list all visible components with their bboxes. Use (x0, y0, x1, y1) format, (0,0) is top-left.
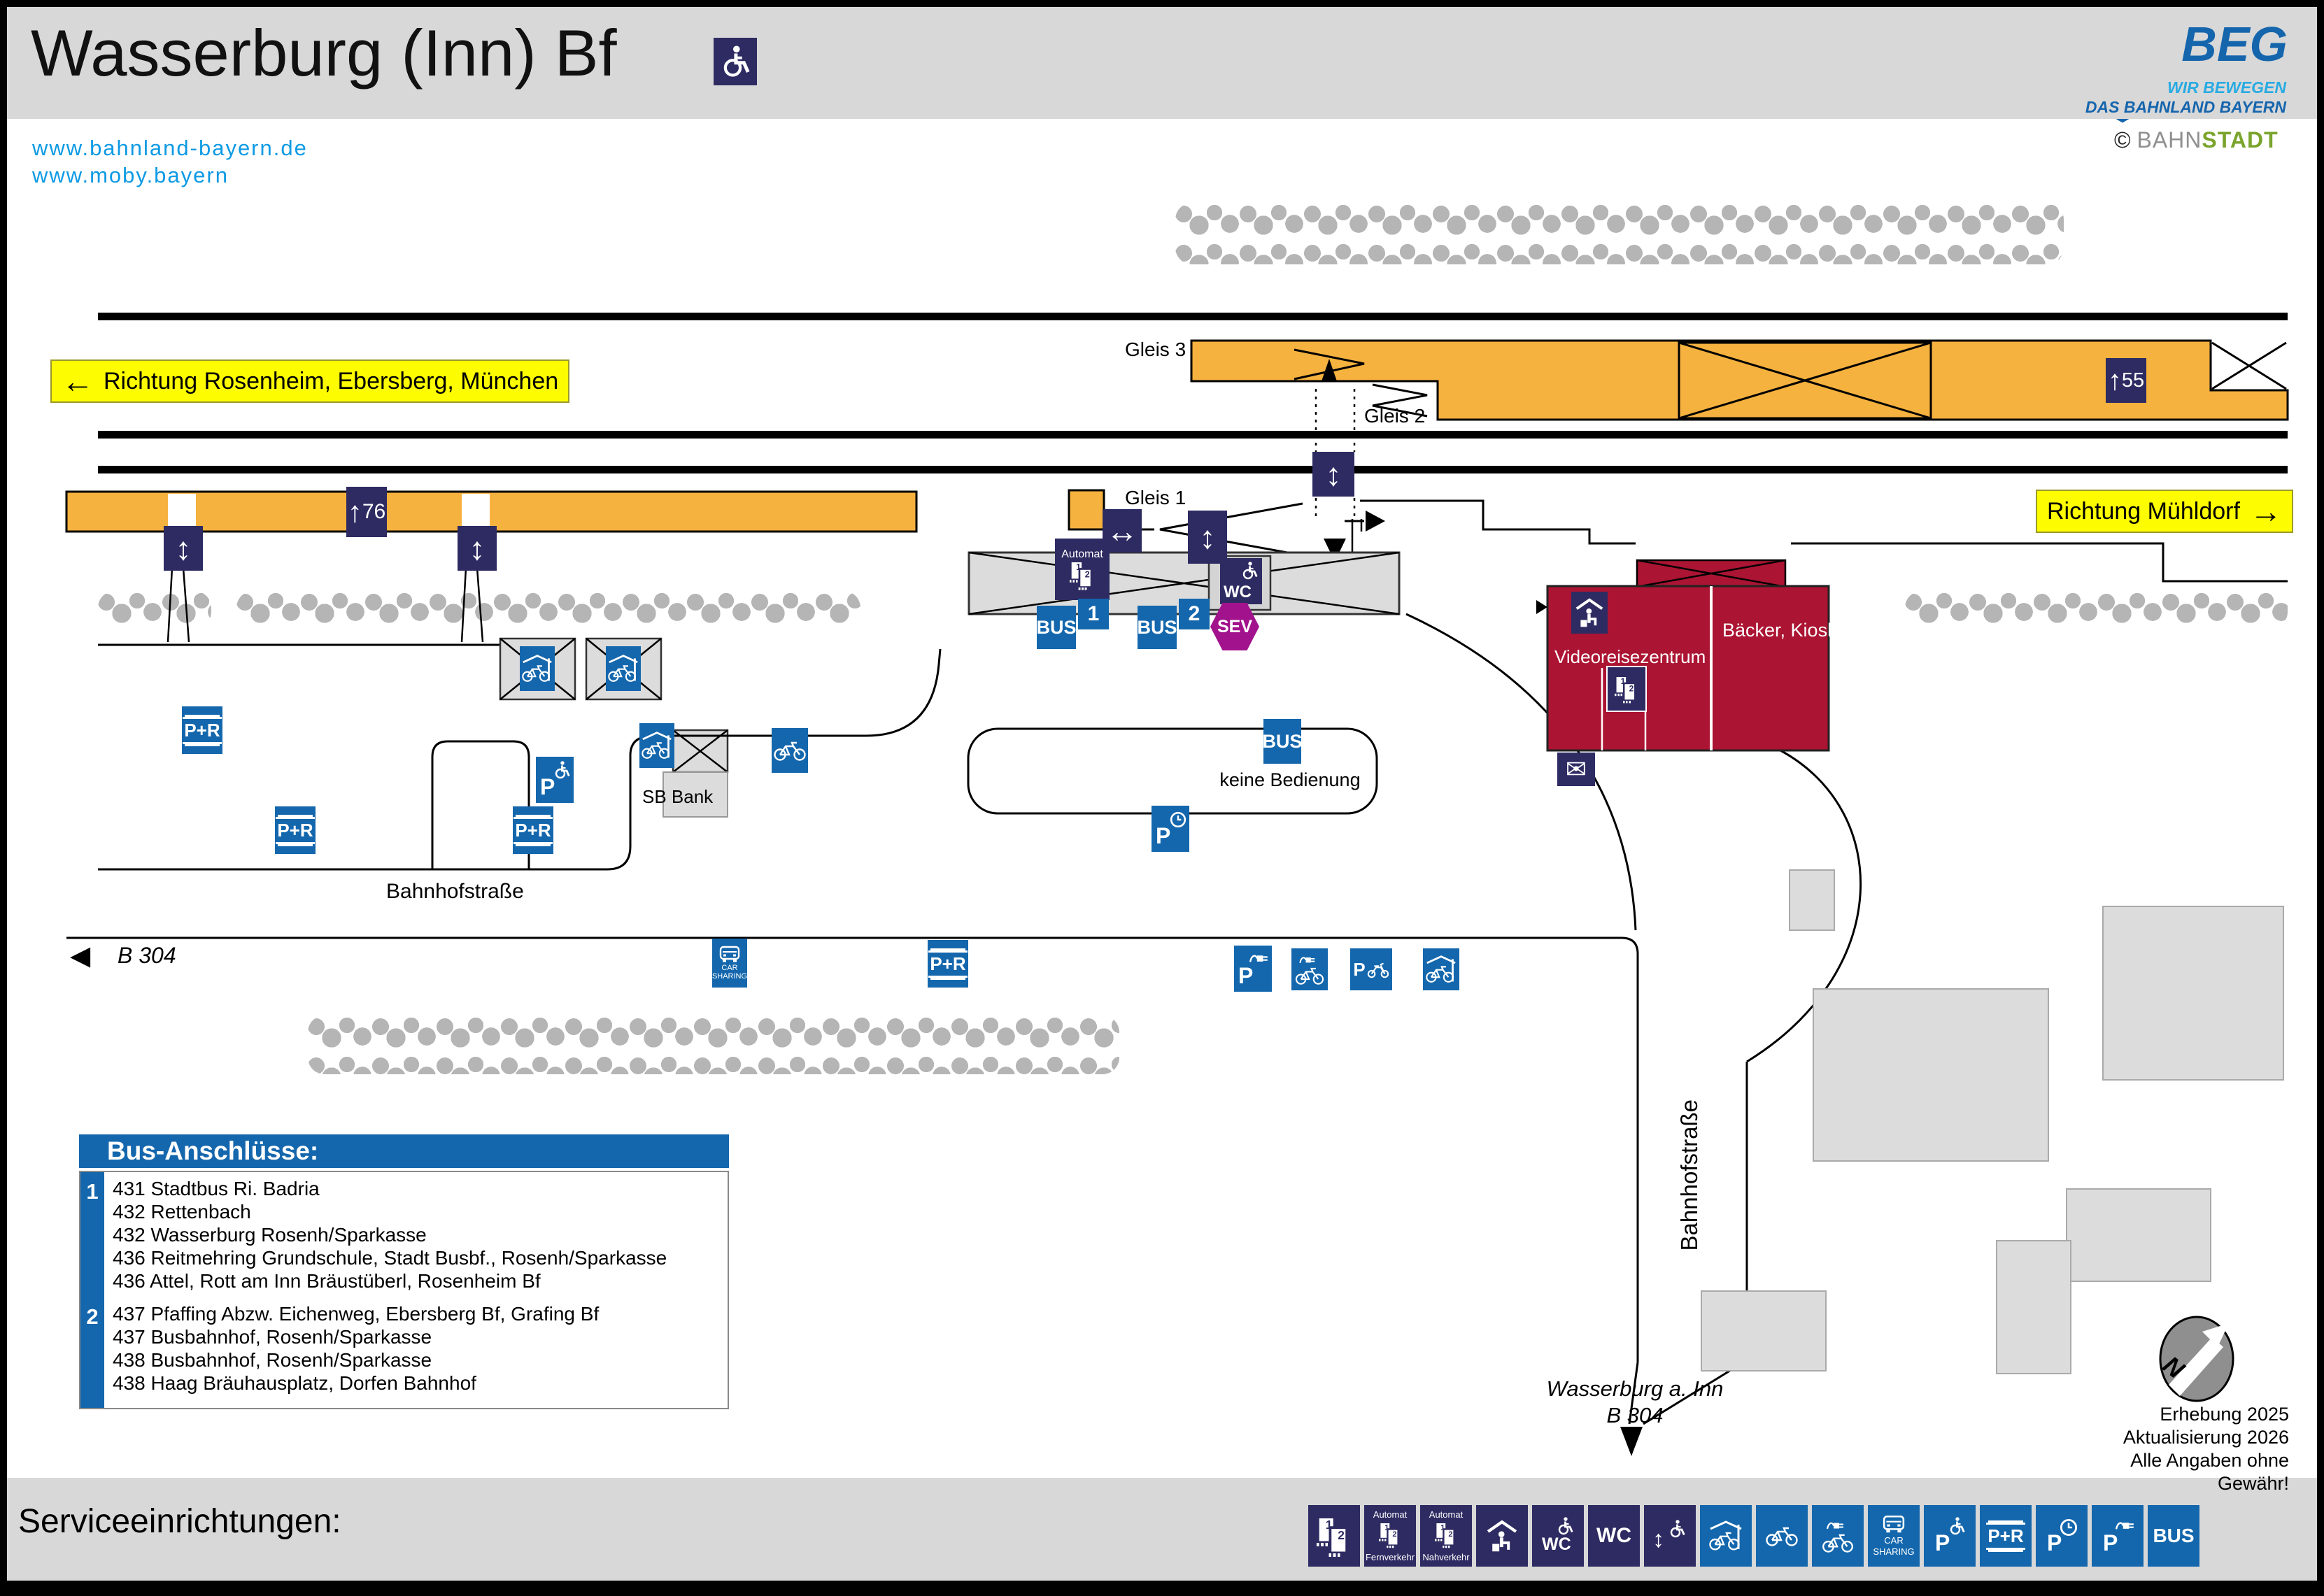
bus-line-row: 432 Wasserburg Rosenh/Sparkasse (113, 1224, 427, 1246)
b304-west-label: B 304 (118, 943, 176, 969)
direction-banner-east: Richtung Mühldorf → (2036, 490, 2293, 533)
keine-bedienung-label: keine Bedienung (1219, 769, 1360, 791)
survey-note: Erhebung 2025 Aktualisierung 2026 Alle A… (2057, 1403, 2289, 1495)
disabled-parking-badge: P (536, 757, 574, 803)
bus-connections-title: Bus-Anschlüsse: (79, 1134, 729, 1168)
bahnstadt-part2: STADT (2202, 127, 2278, 152)
bahnhofstrasse-label: Bahnhofstraße (386, 880, 524, 904)
entrance-arrow (1536, 600, 1547, 614)
short-term-parking-badge: P (1152, 806, 1189, 852)
bus-line-row: 437 Pfaffing Abzw. Eichenweg, Ebersberg … (113, 1303, 599, 1325)
covered-bike-parking-icon (1700, 1505, 1752, 1567)
covered-bike-icon (522, 651, 553, 686)
ebike-charging-badge (1291, 948, 1328, 990)
sb-bank-label: SB Bank (642, 786, 713, 808)
wheelchair-icon (719, 45, 751, 78)
bus-connections-panel: Bus-Anschlüsse: 1431 Stadtbus Ri. Badria… (79, 1134, 729, 1409)
park-ride-badge-2: P+R (275, 806, 316, 854)
survey-year: Erhebung 2025 (2057, 1403, 2289, 1426)
page-title: Wasserburg (Inn) Bf (31, 15, 617, 91)
covered-bike-icon (642, 728, 672, 763)
beg-wordmark: BEG (2176, 18, 2288, 70)
ev-charging-badge: P (1234, 946, 1272, 992)
bus-stop-column (80, 1172, 104, 1408)
left-arrow-icon: ← (62, 374, 94, 388)
bus-stop-2-number: 2 (1179, 599, 1210, 629)
bus-stop-number-1: 1 (80, 1179, 104, 1204)
bike-icon (774, 740, 806, 761)
b304-south-arrow (1620, 1427, 1643, 1456)
platform-length-76-badge: ↑ 76 (346, 487, 387, 537)
right-arrow-icon: → (2250, 504, 2282, 518)
bus-stop-1-badge: BUS (1037, 606, 1076, 649)
copyright-icon: © (2114, 127, 2131, 152)
covered-bike-badge-2 (606, 646, 641, 691)
covered-bike-badge-3 (639, 723, 674, 768)
moped-parking-badge: P (1350, 948, 1392, 990)
b304-south-label: B 304 (1606, 1403, 1663, 1428)
beg-tagline1: WIR BEWEGEN (2167, 78, 2286, 97)
mailbox-badge: ✉ (1557, 753, 1595, 786)
bus-loop-stop-badge: BUS (1263, 719, 1301, 764)
up-arrow-icon: ↑ (348, 498, 362, 526)
disclaimer: Alle Angaben ohne Gewähr! (2057, 1449, 2289, 1495)
link-moby-bayern[interactable]: www.moby.bayern (32, 162, 308, 189)
covered-bike-icon (1426, 953, 1457, 986)
envelope-icon: ✉ (1566, 755, 1587, 784)
baecker-kiosk-label: Bäcker, Kiosk (1722, 620, 1837, 641)
elevator-mid-icon: ↕ (458, 526, 497, 571)
beg-logo-text: BEG (2176, 18, 2288, 70)
car-sharing-icon: CARSHARING (1868, 1505, 1920, 1567)
wasserburg-label: Wasserburg a. Inn (1547, 1376, 1724, 1402)
bus-line-row: 431 Stadtbus Ri. Badria (113, 1178, 320, 1200)
ticket-machine-building-badge: Automat 12 (1055, 539, 1110, 600)
bahnhofstrasse-south-label: Bahnhofstraße (1676, 1099, 1703, 1251)
website-links: www.bahnland-bayern.de www.moby.bayern (32, 134, 308, 189)
accessible-wc-icon: WC (1532, 1505, 1584, 1567)
car-icon (719, 946, 740, 964)
ticket-icon: 12 (1072, 562, 1093, 587)
track-gleis3 (98, 313, 2288, 320)
disabled-parking-icon: P (1924, 1505, 1976, 1567)
videoreisezentrum-label: Videoreisezentrum (1554, 646, 1706, 668)
bus-stop-2-badge: BUS (1138, 606, 1177, 649)
bus-line-row: 436 Reitmehring Grundschule, Stadt Busbf… (113, 1247, 667, 1269)
covered-bike-badge-4 (1423, 948, 1459, 990)
track-gleis1 (98, 466, 2288, 473)
bike-parking-badge (772, 728, 808, 773)
gleis2-label: Gleis 2 (1364, 405, 1425, 427)
wc-icon: WC (1588, 1505, 1640, 1567)
bus-connections-list: 1431 Stadtbus Ri. Badria432 Rettenbach43… (79, 1171, 729, 1409)
direction-banner-west: ← Richtung Rosenheim, Ebersberg, München (50, 359, 569, 403)
bike-parking-icon (1756, 1505, 1808, 1567)
elevator-west-icon: ↕ (164, 526, 203, 571)
context-buildings (1701, 870, 2283, 1374)
footer-title: Serviceeinrichtungen: (18, 1502, 341, 1541)
up-arrow-icon: ↑ (2108, 367, 2122, 394)
ticket-counter-icon: 12 (1308, 1505, 1360, 1567)
videoreisezentrum-ticket-badge: 12 (1606, 666, 1647, 712)
bus-line-row: 437 Busbahnhof, Rosenh/Sparkasse (113, 1326, 432, 1348)
wheelchair-icon (1240, 562, 1259, 580)
bus-line-row: 438 Haag Bräuhausplatz, Dorfen Bahnhof (113, 1372, 476, 1395)
moped-icon (1367, 960, 1389, 978)
bahnstadt-credit: © BAHNSTADT (2114, 127, 2279, 153)
link-bahnland-bayern[interactable]: www.bahnland-bayern.de (32, 134, 308, 162)
park-and-ride-icon: P+R (1980, 1505, 2032, 1567)
elevator-island-icon: ↕ (1312, 452, 1354, 497)
ebike-charging-icon (1294, 953, 1325, 986)
car-sharing-badge: CAR SHARING (712, 939, 747, 988)
bus-stop-number-2: 2 (80, 1304, 104, 1330)
path-right-arrow (1366, 511, 1385, 532)
ebike-charging-icon (1812, 1505, 1864, 1567)
waiting-room-icon (1476, 1505, 1528, 1567)
park-ride-badge-3: P+R (513, 806, 553, 854)
boarding-aid-icon: ↕ (1644, 1505, 1696, 1567)
elevator-shafts (168, 568, 483, 642)
waiting-room-icon (1575, 598, 1604, 627)
update-year: Aktualisierung 2026 (2057, 1426, 2289, 1449)
crossing-chevron (1160, 504, 1303, 555)
ticket-machine-local-icon: Automat12Nahverkehr (1420, 1505, 1472, 1567)
bus-line-row: 432 Rettenbach (113, 1201, 251, 1223)
track-gleis2 (98, 431, 2288, 439)
service-icons-row: 12Automat12FernverkehrAutomat12Nahverkeh… (1308, 1505, 2211, 1567)
waiting-room-badge (1571, 592, 1608, 634)
covered-bike-badge-1 (520, 646, 555, 691)
bus-stop-1-number: 1 (1078, 599, 1109, 629)
elevator-crossing-icon: ↕ (1188, 511, 1227, 564)
ticket-icon: 12 (1617, 677, 1637, 701)
park-ride-badge-4: P+R (928, 940, 968, 988)
beg-tagline2: DAS BAHNLAND BAYERN (2085, 98, 2286, 117)
bus-line-row: 438 Busbahnhof, Rosenh/Sparkasse (113, 1349, 432, 1371)
covered-bike-icon (608, 651, 639, 686)
bus-line-row: 436 Attel, Rott am Inn Bräustüberl, Rose… (113, 1270, 541, 1292)
park-ride-badge-1: P+R (182, 706, 222, 754)
gleis3-label: Gleis 3 (1125, 339, 1186, 361)
ticket-machine-longdistance-icon: Automat12Fernverkehr (1364, 1505, 1416, 1567)
ev-charging-icon: P (2092, 1505, 2144, 1567)
gleis1-label: Gleis 1 (1125, 487, 1186, 509)
b304-west-arrow: ◀ (70, 940, 90, 971)
accessible-wc-badge: WC (1220, 558, 1262, 604)
left-triangle-icon: ◀ (70, 941, 90, 971)
clock-icon (1170, 811, 1186, 828)
short-term-parking-icon: P (2036, 1505, 2088, 1567)
accessible-station-badge (714, 38, 757, 85)
bahnstadt-part1: BAHN (2137, 127, 2202, 152)
bus-icon: BUS (2148, 1505, 2199, 1567)
platform-length-55-badge: ↑ 55 (2106, 358, 2146, 403)
wheelchair-icon (553, 761, 571, 779)
